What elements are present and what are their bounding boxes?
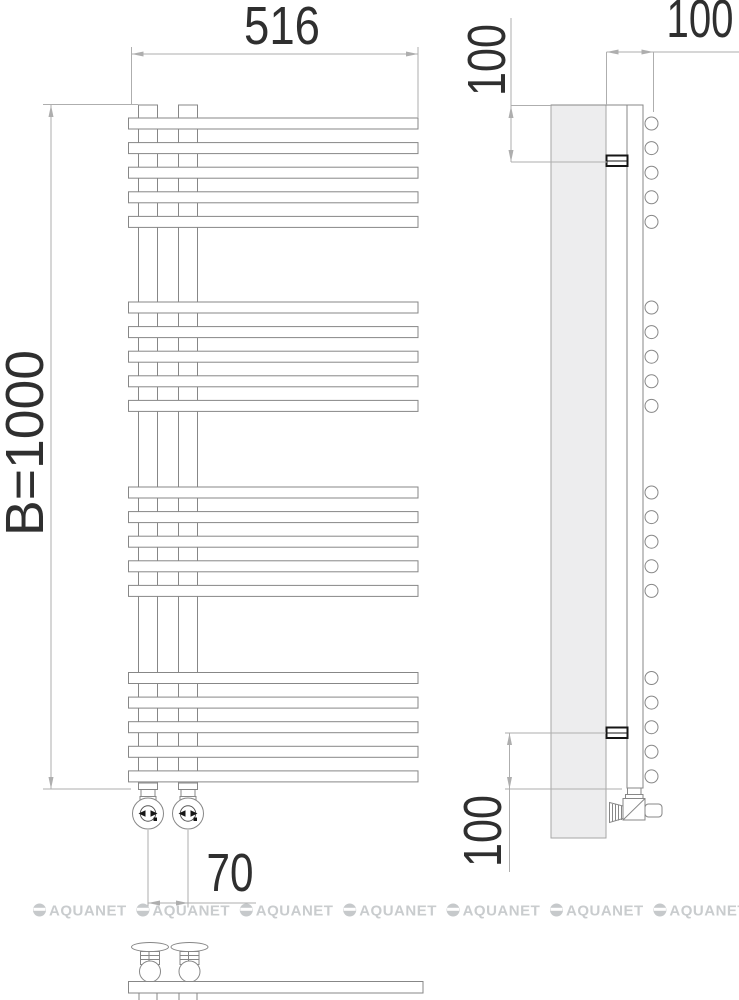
towel-rail [129, 722, 419, 733]
towel-rail [129, 118, 419, 129]
rail-end-circle [645, 375, 658, 388]
towel-rail [129, 327, 419, 338]
valve-ball [179, 961, 200, 982]
bottom-view [129, 943, 424, 1000]
arrow-right-icon [642, 50, 654, 55]
technical-drawing: 516 B=1000 70 100 [0, 0, 739, 1000]
towel-rails [129, 118, 419, 782]
towel-rail [129, 561, 419, 572]
rail-end-circle [645, 745, 658, 758]
towel-rail [129, 697, 419, 708]
watermark-row: AQUANETAQUANETAQUANETAQUANETAQUANETAQUAN… [33, 903, 739, 920]
front-view [129, 105, 419, 829]
watermark-item: AQUANET [653, 903, 739, 920]
wall-bracket-top [607, 156, 628, 167]
arrow-up-icon [49, 105, 54, 117]
dim-bottom-offset-label: 100 [453, 795, 513, 867]
towel-rail [129, 400, 419, 411]
front-riser-pipe-left [139, 105, 158, 789]
watermark-item: AQUANET [33, 903, 127, 920]
towel-rail [129, 536, 419, 547]
valve-handle [171, 943, 208, 952]
radiator-valve [133, 783, 164, 829]
watermark-text: AQUANET [566, 903, 644, 920]
arrow-up-icon [507, 733, 512, 745]
bottom-valve [171, 943, 208, 983]
arrow-down-icon [49, 777, 54, 789]
dim-width-label: 516 [244, 0, 320, 56]
rail-end-circle [645, 672, 658, 685]
towel-rail [129, 192, 419, 203]
towel-rail [129, 216, 419, 227]
towel-rail [129, 585, 419, 596]
dim-width: 516 [132, 0, 419, 118]
towel-rail [129, 302, 419, 313]
watermark-text: AQUANET [359, 903, 437, 920]
valve-handle [132, 943, 169, 952]
arrow-left-icon [132, 52, 144, 57]
watermark-text: AQUANET [49, 903, 127, 920]
rail-end-circle [645, 215, 658, 228]
towel-rail [129, 143, 419, 154]
rail-end-circle [645, 584, 658, 597]
valve-ball [140, 961, 161, 982]
bottom-valves [132, 943, 209, 983]
dim-top-offset-label: 100 [457, 24, 517, 96]
bottom-rail-bar [129, 982, 424, 994]
watermark-text: AQUANET [669, 903, 739, 920]
rail-end-circle [645, 326, 658, 339]
rail-end-circle [645, 117, 658, 130]
rail-end-circle [645, 486, 658, 499]
towel-rail [129, 771, 419, 782]
rail-end-circle [645, 142, 658, 155]
side-riser-pipe [627, 105, 643, 788]
rail-end-circle [645, 535, 658, 548]
bottom-valve [132, 943, 169, 983]
rail-end-circle [645, 560, 658, 573]
watermark-text: AQUANET [463, 903, 541, 920]
bottom-pipe-stub-left [139, 993, 157, 1000]
rail-end-circle [645, 721, 658, 734]
towel-rail [129, 487, 419, 498]
arrow-left-icon [607, 50, 619, 55]
dim-depth-label: 100 [667, 0, 734, 49]
side-panel [551, 105, 606, 838]
watermark-item: AQUANET [550, 903, 644, 920]
side-view [551, 105, 662, 838]
watermark-text: AQUANET [152, 903, 230, 920]
front-riser-pipe-right [179, 105, 198, 789]
arrow-right-icon [406, 52, 418, 57]
towel-rail [129, 512, 419, 523]
dim-depth: 100 [607, 0, 739, 112]
towel-rail [129, 673, 419, 684]
rail-end-circle [645, 399, 658, 412]
towel-rail [129, 351, 419, 362]
rail-end-circle [645, 770, 658, 783]
watermark-item: AQUANET [447, 903, 541, 920]
arrow-up-icon [509, 106, 514, 118]
watermark-text: AQUANET [256, 903, 334, 920]
watermark-item: AQUANET [240, 903, 334, 920]
dim-height: B=1000 [0, 105, 138, 790]
watermark-item: AQUANET [136, 903, 230, 920]
front-valves [133, 783, 204, 829]
rail-end-circle [645, 301, 658, 314]
rail-end-circles [645, 117, 658, 783]
arrow-down-icon [507, 777, 512, 789]
dim-valve-spacing: 70 [148, 830, 256, 908]
dim-height-label: B=1000 [0, 350, 55, 536]
towel-rail [129, 167, 419, 178]
bottom-pipe-stub-right [179, 993, 197, 1000]
rail-end-circle [645, 166, 658, 179]
rail-end-circle [645, 511, 658, 524]
drawing-canvas: 516 B=1000 70 100 [0, 0, 739, 1000]
arrow-down-icon [509, 150, 514, 162]
towel-rail [129, 746, 419, 757]
towel-rail [129, 376, 419, 387]
rail-end-circle [645, 696, 658, 709]
dim-valve-spacing-label: 70 [207, 843, 254, 903]
rail-end-circle [645, 191, 658, 204]
watermark-item: AQUANET [343, 903, 437, 920]
radiator-valve [173, 783, 204, 829]
wall-bracket-bottom [607, 728, 628, 739]
rail-end-circle [645, 350, 658, 363]
side-corner-valve [610, 788, 663, 823]
